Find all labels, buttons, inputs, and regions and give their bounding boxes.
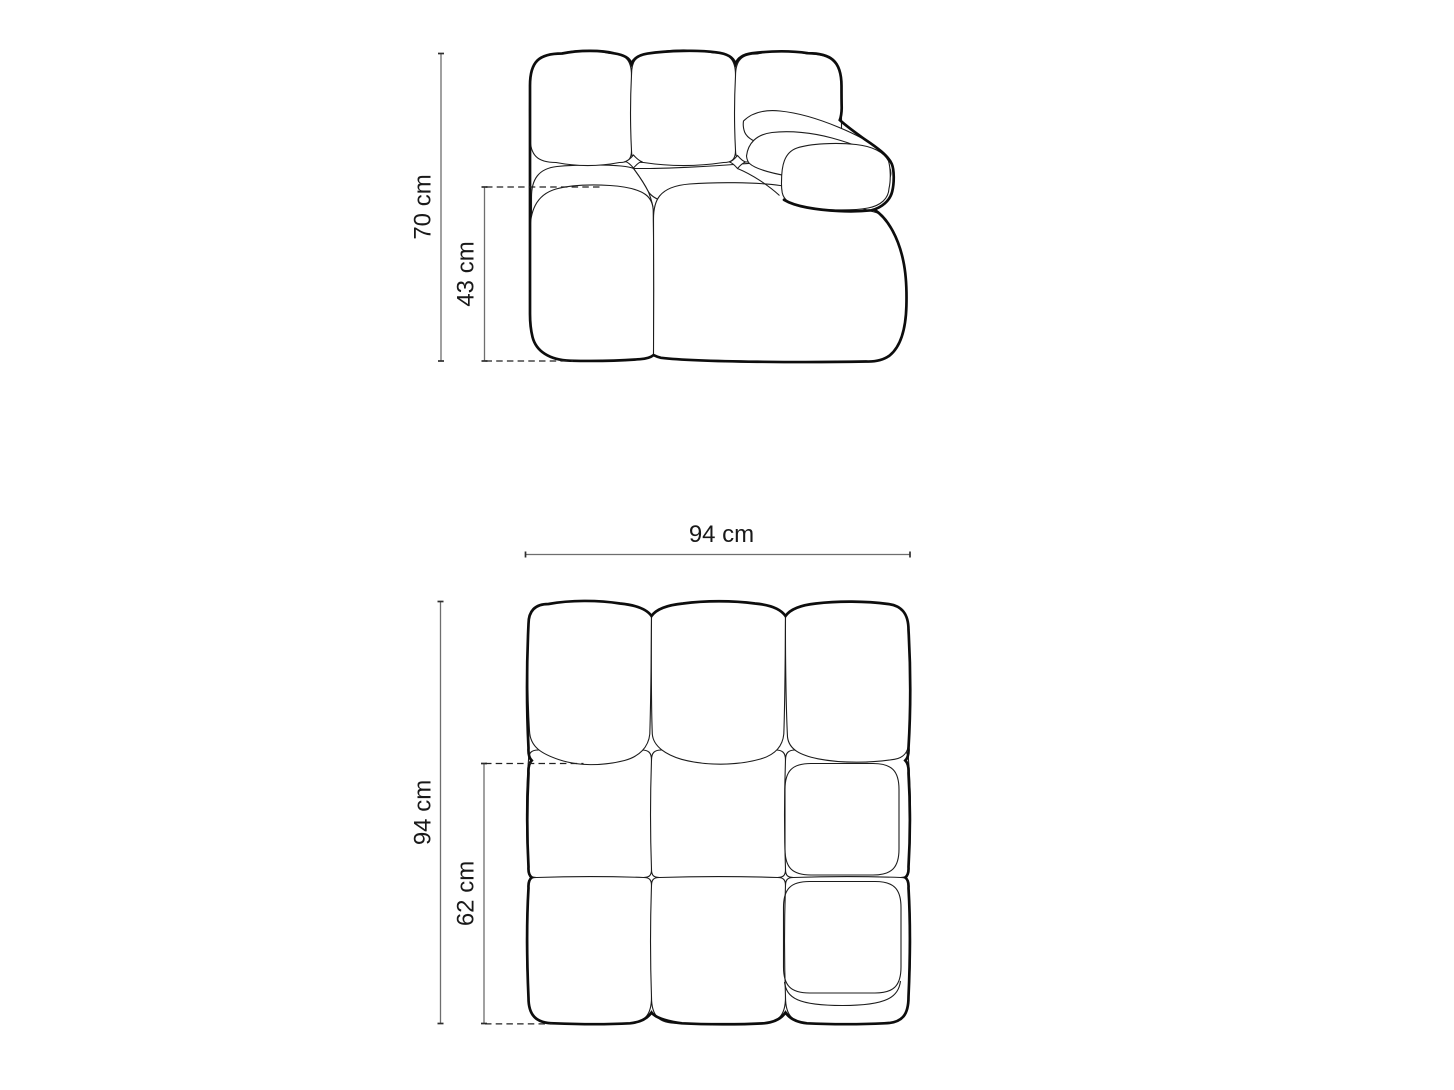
svg-text:94 cm: 94 cm <box>410 780 437 845</box>
svg-text:62 cm: 62 cm <box>453 861 480 926</box>
svg-text:70 cm: 70 cm <box>410 174 437 239</box>
svg-text:94 cm: 94 cm <box>689 521 754 548</box>
svg-text:43 cm: 43 cm <box>453 241 480 306</box>
